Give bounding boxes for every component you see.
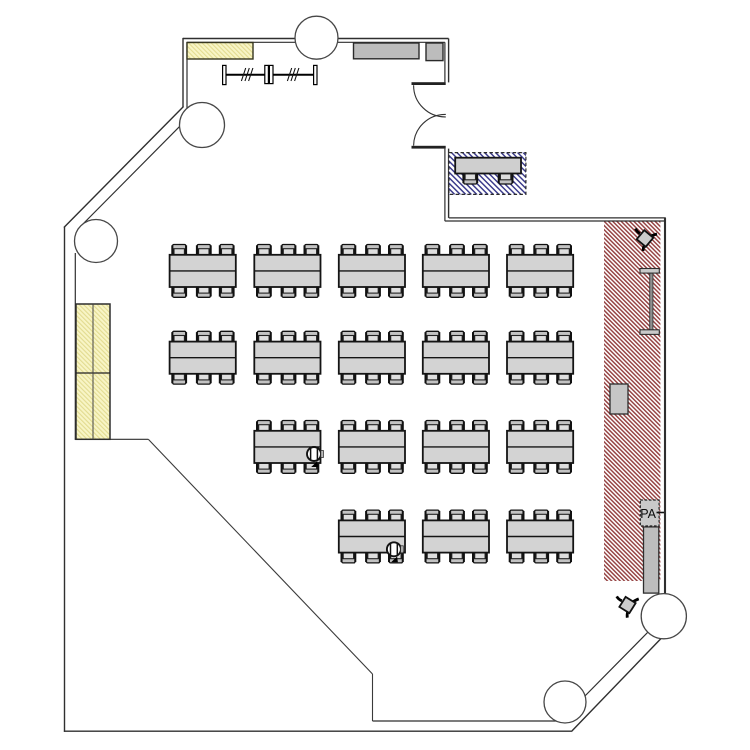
svg-text:PA: PA [640, 507, 656, 521]
